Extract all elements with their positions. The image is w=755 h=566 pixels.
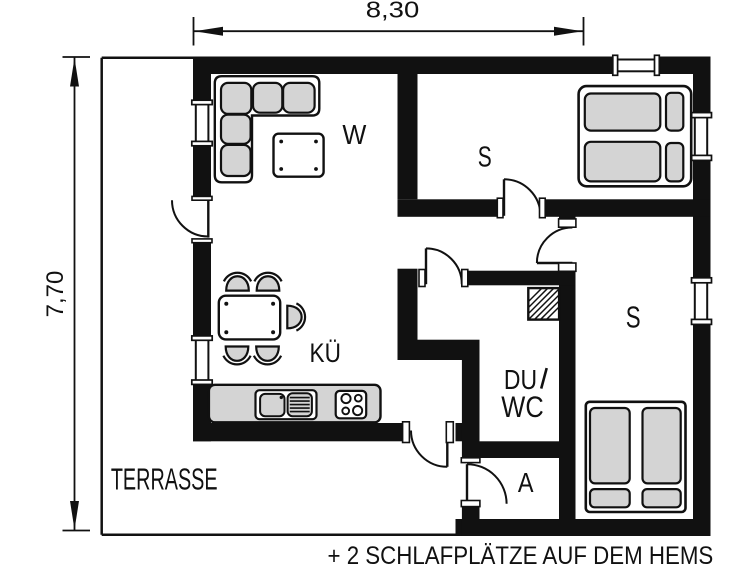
svg-text:W: W	[342, 119, 366, 150]
svg-text:8,30: 8,30	[366, 0, 420, 23]
svg-text:KÜ: KÜ	[310, 338, 341, 368]
svg-text:S: S	[626, 300, 641, 334]
svg-text:+ 2 SCHLAFPLÄTZE AUF DEM HEMS: + 2 SCHLAFPLÄTZE AUF DEM HEMS	[327, 542, 713, 566]
svg-text:A: A	[518, 468, 534, 498]
svg-text:TERRASSE: TERRASSE	[111, 463, 218, 496]
svg-text:7,70: 7,70	[42, 271, 69, 318]
svg-text:S: S	[478, 141, 492, 173]
svg-text:WC: WC	[501, 390, 543, 423]
